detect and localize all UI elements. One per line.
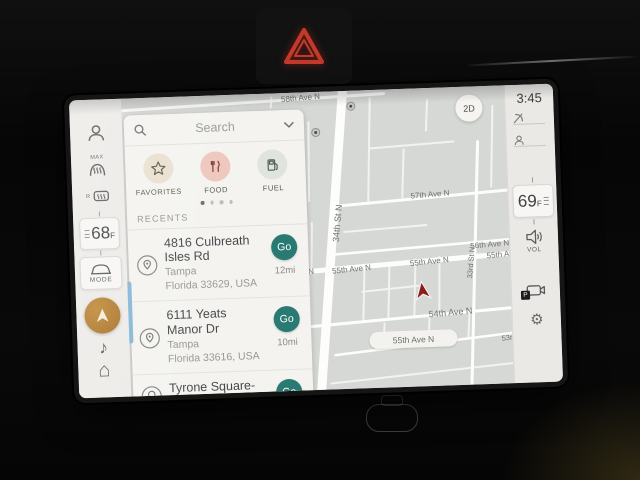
driver-temp-unit: F <box>110 231 115 240</box>
driver-temperature-control[interactable]: 68 F <box>79 217 120 250</box>
profile-status <box>513 130 546 147</box>
category-food[interactable]: FOOD <box>187 151 244 196</box>
volume-button[interactable]: VOL <box>510 228 559 255</box>
dashboard-trim <box>468 56 636 67</box>
map-view-label: 2D <box>463 103 475 113</box>
music-note-icon: ♪ <box>99 338 109 356</box>
go-button[interactable]: Go <box>273 306 300 333</box>
location-pin-icon <box>140 385 164 397</box>
page-dot <box>210 201 214 205</box>
recent-distance: 10mi <box>277 337 298 349</box>
location-pin-icon <box>135 253 159 277</box>
rear-defrost-icon <box>92 188 111 204</box>
driver-temp-value: 68 <box>91 223 111 244</box>
phone-status <box>513 108 546 125</box>
phone-disconnected-icon <box>513 113 524 124</box>
recent-region: Florida 33616, USA <box>168 350 266 367</box>
navigation-arrow-icon <box>93 306 112 325</box>
search-panel: Search FAVORITES <box>124 109 315 396</box>
front-defrost-button[interactable]: MAX <box>87 154 108 178</box>
volume-label: VOL <box>527 246 542 254</box>
seat-sync-icon <box>543 196 548 204</box>
fuel-pump-icon <box>265 157 281 173</box>
reflection <box>500 380 640 480</box>
parking-badge: P <box>521 291 530 300</box>
temp-down-tick <box>533 219 534 224</box>
page-dot <box>201 201 205 205</box>
person-icon <box>86 123 107 143</box>
seat-sync-icon <box>84 230 89 238</box>
recent-item[interactable]: 4816 Culbreath Isles Rd Tampa Florida 33… <box>128 224 310 302</box>
hazard-button[interactable] <box>256 8 352 84</box>
category-favorites[interactable]: FAVORITES <box>130 153 187 198</box>
recent-region: Florida 33629, USA <box>165 277 263 294</box>
star-icon <box>150 160 167 177</box>
fork-knife-icon <box>208 159 222 173</box>
speaker-icon <box>524 228 544 246</box>
category-fuel[interactable]: FUEL <box>244 148 301 193</box>
chevron-down-icon[interactable] <box>283 121 295 129</box>
navigation-app-button[interactable] <box>84 297 121 334</box>
recent-item[interactable]: 6111 Yeats Manor Dr Tampa Florida 33616,… <box>130 295 312 374</box>
go-button[interactable]: Go <box>271 233 298 260</box>
clock: 3:45 <box>505 90 553 107</box>
search-placeholder: Search <box>147 118 283 137</box>
infotainment-screen: MAX R <box>69 84 563 399</box>
temp-up-tick <box>98 212 99 217</box>
page-dot <box>220 200 224 204</box>
car-icon <box>90 262 112 276</box>
temp-down-tick <box>100 251 101 256</box>
gear-icon: ⚙ <box>530 311 544 328</box>
rear-defrost-button[interactable]: R <box>86 188 111 204</box>
profile-button[interactable] <box>86 123 107 143</box>
dashboard-latch <box>381 395 403 406</box>
media-button[interactable]: ♪ <box>99 338 109 356</box>
search-icon <box>133 123 147 137</box>
go-button[interactable]: Go <box>276 379 303 397</box>
settings-button[interactable]: ⚙ <box>513 312 561 329</box>
person-small-icon <box>513 135 524 146</box>
map-canvas[interactable]: 58th Ave N 57th Ave N 56th Ave N 55th Av… <box>121 85 514 396</box>
category-row: FAVORITES FOOD <box>125 140 307 199</box>
home-button[interactable]: ⌂ <box>98 360 111 380</box>
rear-defrost-label: R <box>86 193 91 199</box>
temp-up-tick <box>531 177 532 182</box>
climate-mode-button[interactable]: MODE <box>79 256 122 290</box>
right-sidebar: 3:45 69 F <box>504 84 563 384</box>
passenger-temperature-control[interactable]: 69 F <box>512 184 554 218</box>
recent-distance: 12mi <box>275 264 296 276</box>
front-defrost-icon <box>87 160 108 178</box>
hazard-triangle-icon <box>280 24 328 68</box>
car-dashboard-photo: MAX R <box>0 0 640 480</box>
page-dot <box>229 200 233 204</box>
passenger-temp-unit: F <box>537 199 542 208</box>
location-pin-icon <box>138 326 162 350</box>
vehicle-position-arrow <box>410 278 436 308</box>
mode-label: MODE <box>90 276 113 284</box>
camera-button[interactable]: P <box>526 282 547 303</box>
recent-title: Tyrone Square-South <box>169 378 268 397</box>
street-pill-label: 55th Ave N <box>369 329 458 349</box>
recent-title: 6111 Yeats Manor Dr <box>166 305 265 338</box>
home-icon: ⌂ <box>98 360 111 380</box>
recent-title: 4816 Culbreath Isles Rd <box>164 232 263 265</box>
passenger-temp-value: 69 <box>517 191 537 212</box>
dashboard-button[interactable] <box>366 404 418 432</box>
